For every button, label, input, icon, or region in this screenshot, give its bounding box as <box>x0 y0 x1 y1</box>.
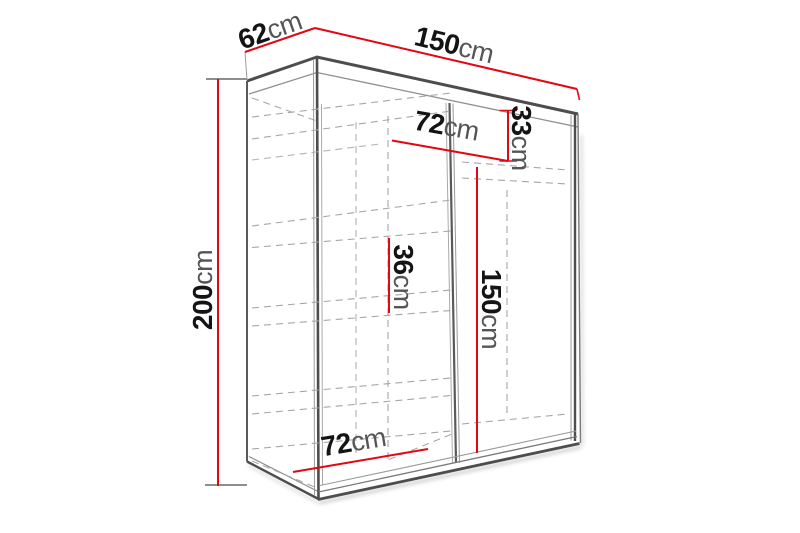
diagram-canvas: 62cm 150cm 200cm 72cm 33cm 36cm 150cm 72… <box>0 0 800 533</box>
bottom-center-depth-hidden <box>389 434 452 460</box>
depth-extension-line <box>245 52 247 80</box>
wardrobe-dimension-diagram: 62cm 150cm 200cm 72cm 33cm 36cm 150cm 72… <box>0 0 800 533</box>
left-face-bottom-inner <box>249 457 318 492</box>
left-door-inner-edge <box>322 104 323 485</box>
upper-section-height-label: 33cm <box>506 105 537 170</box>
width-end-tick <box>577 89 580 100</box>
shelf2-front <box>252 231 451 248</box>
depth-label: 62cm <box>234 5 306 56</box>
width-label: 150cm <box>412 20 497 69</box>
ceiling-back-edge <box>252 144 380 160</box>
left-face-bottom-edge <box>247 462 319 500</box>
shelf3-back <box>252 290 451 308</box>
lower-shelf-width-label: 72cm <box>319 421 388 462</box>
shelf-spacing-label: 36cm <box>388 244 419 309</box>
shelf3-front <box>252 311 451 327</box>
shelf4-back <box>252 378 451 396</box>
upper-shelf-width-label: 72cm <box>412 105 482 147</box>
dimension-labels: 62cm 150cm 200cm 72cm 33cm 36cm 150cm 72… <box>187 5 537 463</box>
center-door-frame <box>450 103 457 463</box>
shadow <box>248 135 583 503</box>
shelf2-back <box>252 200 451 226</box>
right-outer-edge <box>578 114 581 443</box>
hanging-height-label: 150cm <box>476 269 507 349</box>
front-left-edge-outer <box>314 59 315 495</box>
shelf4-front <box>252 396 451 415</box>
top-left-depth-hidden <box>252 98 317 121</box>
height-label: 200cm <box>187 250 218 330</box>
